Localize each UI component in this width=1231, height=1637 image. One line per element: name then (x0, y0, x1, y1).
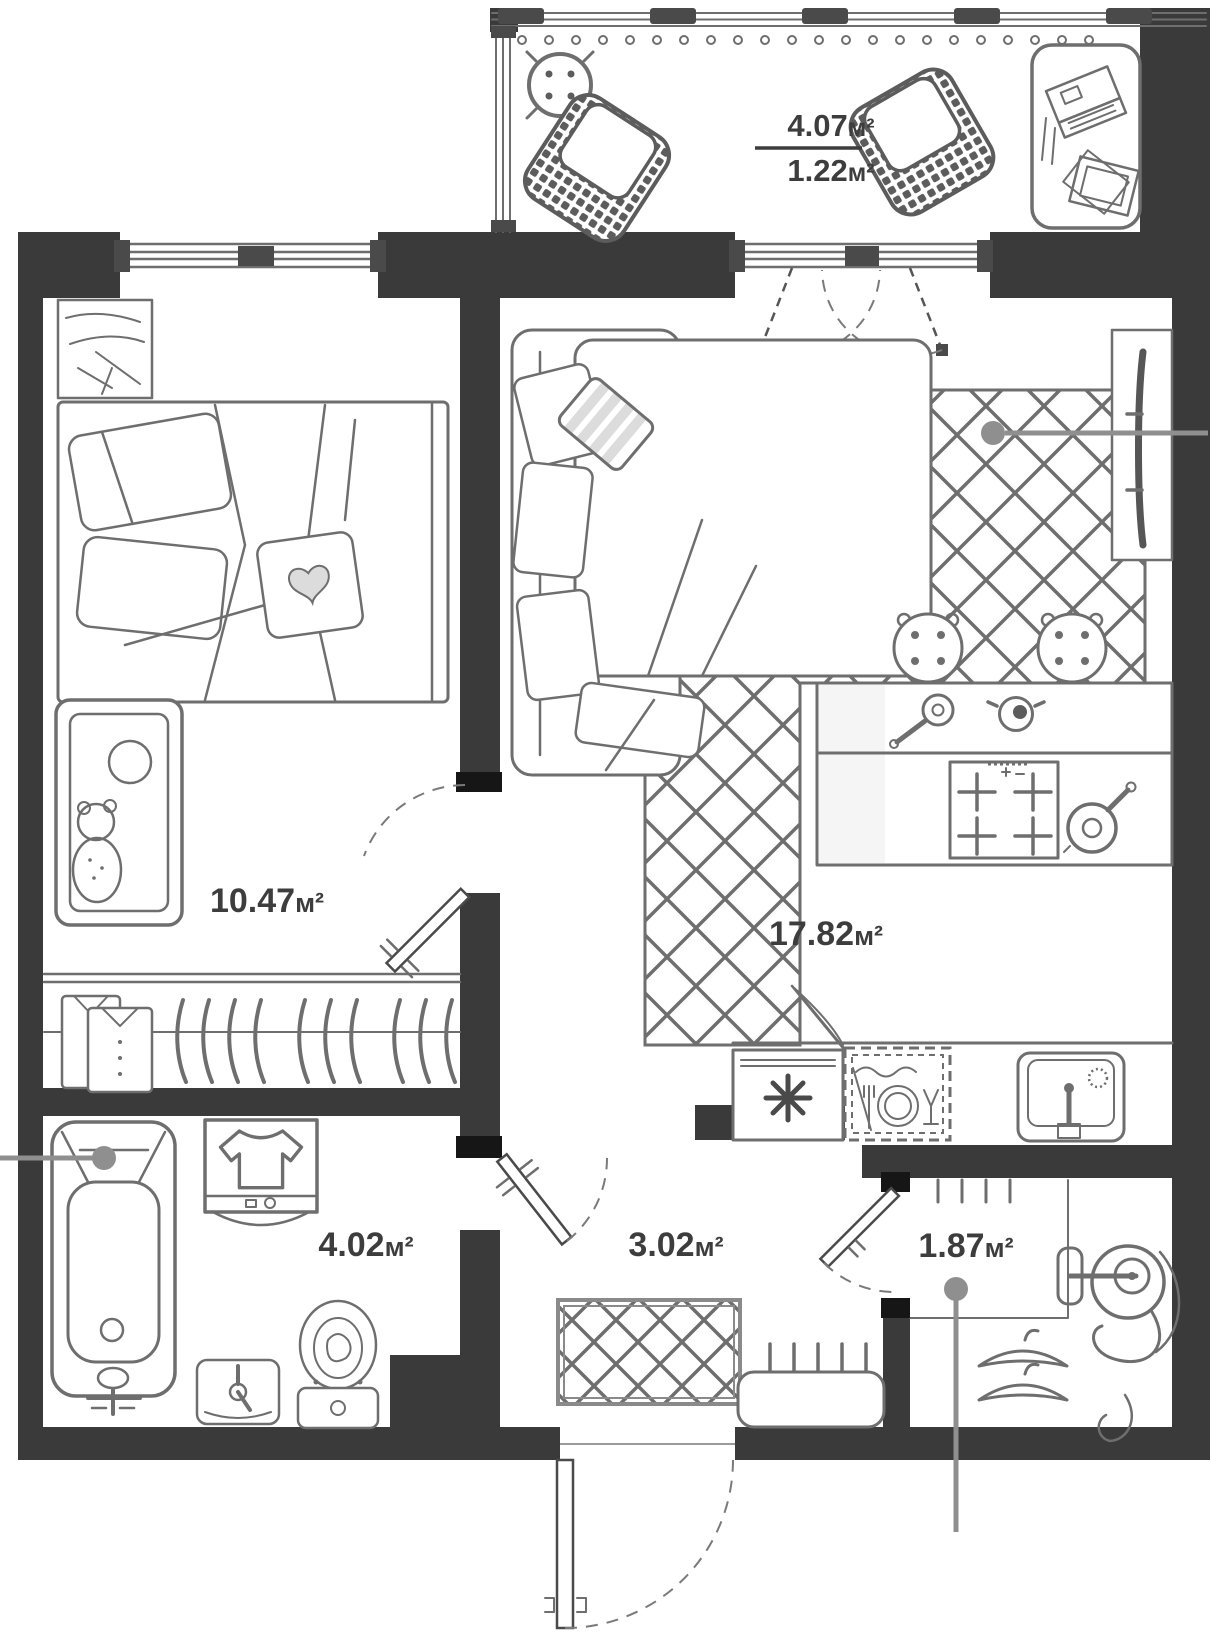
balcony-door-leaf (910, 268, 942, 350)
dishwasher-icon (845, 1048, 950, 1140)
bathroom-sink-icon (197, 1360, 279, 1424)
kitchen-sink-icon (1018, 1053, 1124, 1141)
baby-crib-icon (56, 700, 182, 925)
svg-text:1.22м²: 1.22м² (787, 153, 874, 188)
storage-area-label: 1.87м² (918, 1227, 1013, 1265)
bathtub-icon (52, 1122, 175, 1414)
bathroom-area-label: 4.02м² (318, 1226, 413, 1264)
coat-rail-icon (938, 1180, 1010, 1202)
living-kitchen (512, 330, 1172, 1141)
doors (364, 772, 910, 1628)
wardrobe-icon (44, 974, 460, 1092)
shoe-bench-icon (738, 1344, 884, 1427)
doormat-icon (558, 1300, 740, 1404)
work-desk-icon (1032, 45, 1140, 228)
svg-text:4.07м²: 4.07м² (787, 108, 874, 143)
hallway (558, 1300, 884, 1444)
entrance-door-leaf (545, 1460, 586, 1628)
balcony-area-label: 4.07м² 1.22м² (755, 108, 875, 188)
bedside-table-icon (58, 300, 152, 398)
washing-machine-icon (205, 1120, 317, 1225)
storage-door-leaf (820, 1188, 908, 1276)
double-bed-icon (58, 402, 448, 702)
storage-room (910, 1180, 1179, 1441)
bar-stool-icon (1038, 614, 1106, 682)
tv-panel-icon (1112, 330, 1172, 560)
bedroom-window (114, 240, 386, 272)
vacuum-cleaner-icon (1058, 1246, 1179, 1441)
heart-pillow-icon (256, 531, 364, 639)
bar-stool-icon (894, 614, 962, 682)
toilet-icon (298, 1301, 378, 1428)
balcony-glazing (496, 30, 510, 232)
wardrobe-shirts-icon (62, 996, 152, 1092)
wardrobe-hangers-icon (177, 1000, 455, 1082)
kitchen-island-icon (817, 683, 1172, 865)
bedroom-area-label: 10.47м² (210, 882, 324, 920)
balcony-door-leaf (760, 268, 792, 350)
floor-plan: 4.07м² 1.22м² 10.47м² 17.82м² 4.02м² 3.0… (0, 0, 1231, 1637)
hallway-area-label: 3.02м² (628, 1226, 723, 1264)
floor-plan-page: 4.07м² 1.22м² 10.47м² 17.82м² 4.02м² 3.0… (0, 0, 1231, 1637)
living-kitchen-area-label: 17.82м² (769, 915, 883, 953)
